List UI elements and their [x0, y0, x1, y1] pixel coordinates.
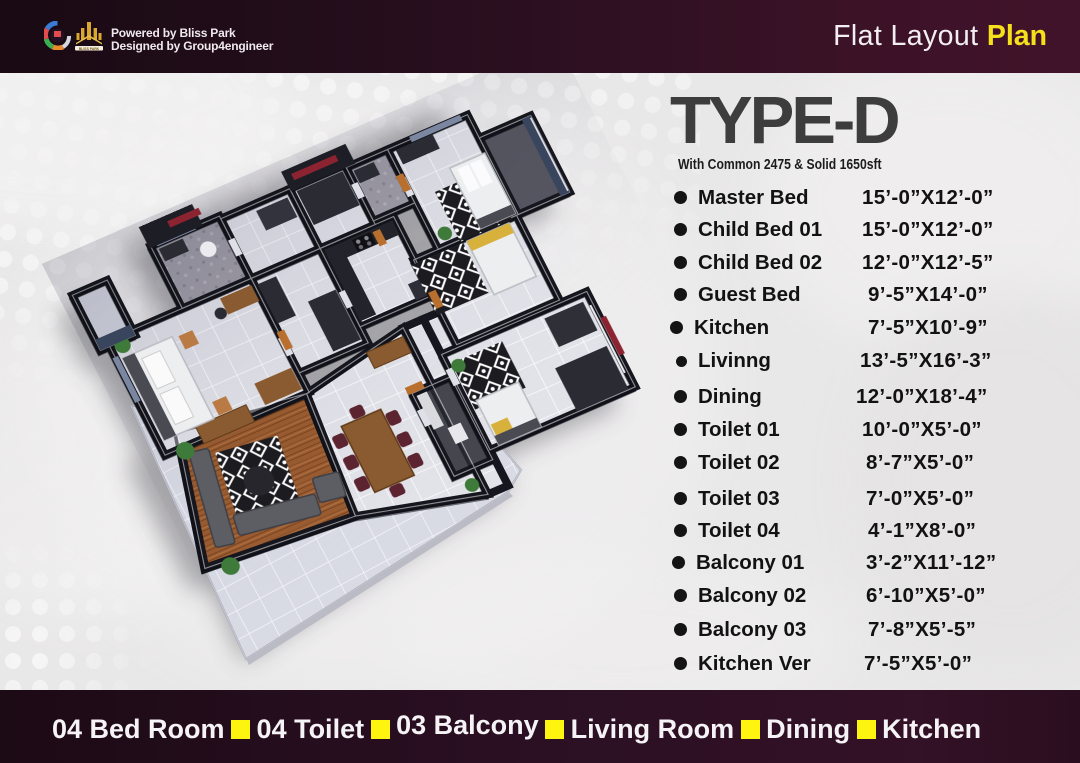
svg-text:BLISS PARK: BLISS PARK: [79, 47, 100, 51]
